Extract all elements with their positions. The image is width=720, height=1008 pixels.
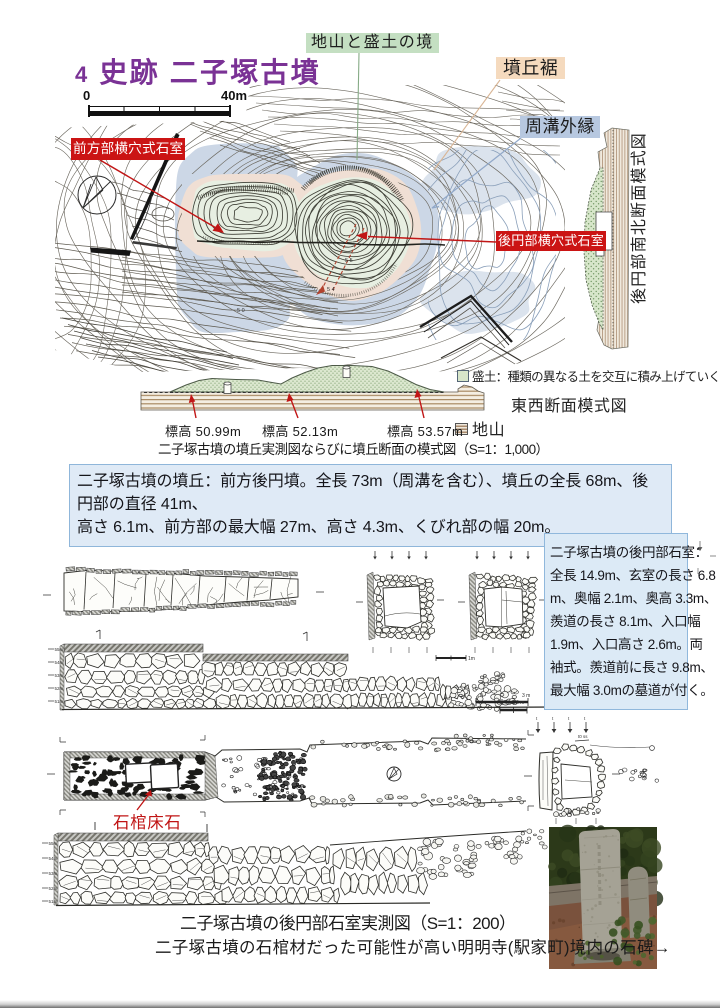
svg-text:3 m: 3 m	[522, 693, 530, 699]
svg-text:t0 ss: t0 ss	[578, 734, 588, 739]
svg-text:5 4: 5 4	[327, 287, 335, 293]
svg-text:53m: 53m	[49, 871, 58, 876]
svg-text:51m: 51m	[49, 899, 58, 904]
svg-text:2 m: 2 m	[516, 700, 524, 706]
svg-text:t: t	[552, 716, 554, 721]
svg-text:52m: 52m	[49, 886, 58, 891]
svg-text:1m: 1m	[468, 656, 475, 662]
svg-text:55m: 55m	[49, 841, 58, 846]
svg-text:53m: 53m	[55, 673, 64, 678]
svg-text:t: t	[536, 716, 538, 721]
svg-text:後円部南北断面模式図: 後円部南北断面模式図	[630, 132, 648, 304]
svg-text:55m: 55m	[55, 647, 64, 652]
svg-text:t: t	[584, 716, 586, 721]
svg-text:51m: 51m	[55, 699, 64, 704]
svg-text:5 0: 5 0	[237, 308, 245, 314]
svg-text:0: 0	[480, 693, 483, 699]
svg-text:t: t	[568, 716, 570, 721]
svg-text:54m: 54m	[49, 856, 58, 861]
svg-text:52m: 52m	[55, 686, 64, 691]
svg-text:54m: 54m	[55, 660, 64, 665]
svg-text:5 5: 5 5	[345, 258, 353, 264]
